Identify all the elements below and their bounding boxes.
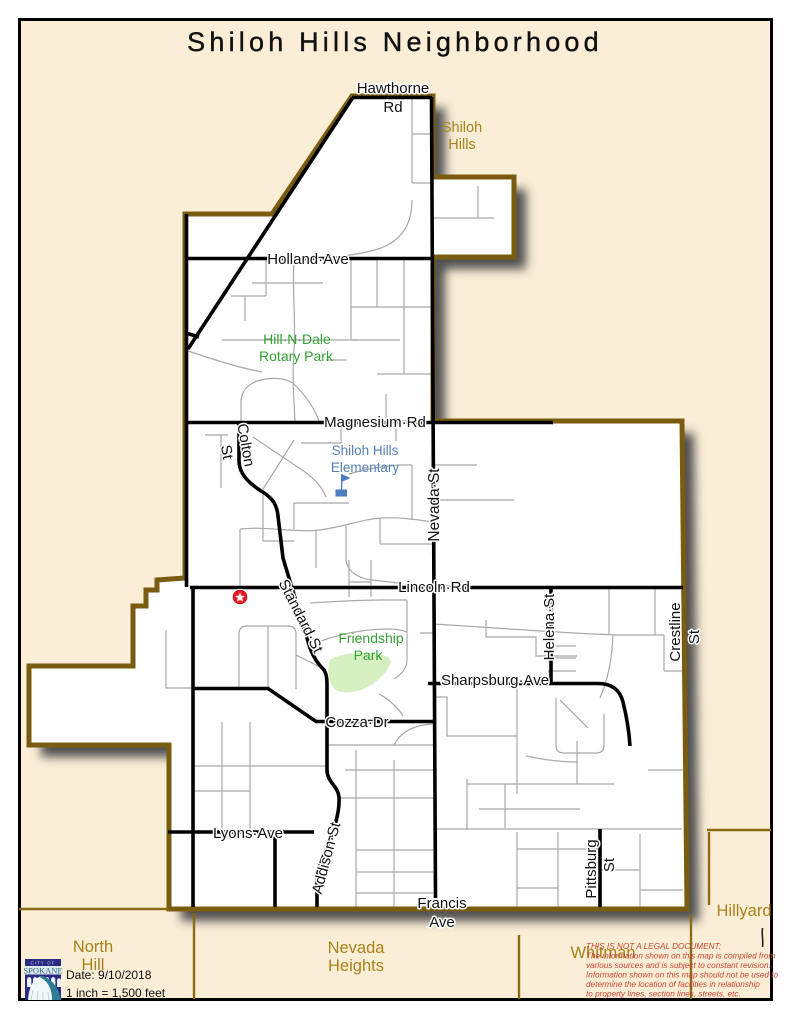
svg-text:Lyons·Ave: Lyons·Ave (213, 825, 283, 842)
svg-text:Magnesium·Rd: Magnesium·Rd (324, 414, 426, 431)
svg-text:1 inch = 1,500 feet: 1 inch = 1,500 feet (66, 986, 166, 1000)
svg-text:Sharpsburg·Ave: Sharpsburg·Ave (441, 672, 549, 689)
svg-text:Cozza·Dr: Cozza·Dr (325, 714, 388, 731)
svg-text:Shiloh Hills: Shiloh Hills (332, 443, 399, 458)
svg-text:to property lines, section lin: to property lines, section lines, street… (586, 990, 741, 999)
svg-text:Lincoln·Rd: Lincoln·Rd (398, 579, 470, 596)
svg-text:Holland·Ave: Holland·Ave (267, 251, 348, 268)
svg-text:St: St (686, 629, 703, 644)
svg-text:Heights: Heights (328, 957, 384, 975)
svg-text:Rd: Rd (383, 99, 402, 116)
svg-text:SPOKANE: SPOKANE (23, 966, 62, 976)
svg-text:Information shown on this map: Information shown on this map should not… (586, 971, 779, 980)
svg-text:Shiloh Hills Neighborhood: Shiloh Hills Neighborhood (187, 27, 603, 57)
svg-text:determine the location of faci: determine the location of facilities in … (586, 980, 760, 989)
svg-text:Shiloh: Shiloh (442, 120, 482, 136)
svg-text:St: St (601, 857, 618, 872)
svg-text:various sources and is subject: various sources and is subject to consta… (586, 961, 771, 970)
svg-text:Friendship: Friendship (338, 630, 404, 646)
svg-text:Nevada: Nevada (328, 939, 386, 957)
svg-text:Hill·N·Dale: Hill·N·Dale (263, 331, 331, 347)
svg-text:Nevada·St: Nevada·St (426, 468, 443, 542)
svg-text:THIS IS NOT A LEGAL DOCUMENT:: THIS IS NOT A LEGAL DOCUMENT: (586, 942, 721, 951)
svg-text:North: North (73, 938, 113, 956)
svg-text:Date: 9/10/2018: Date: 9/10/2018 (66, 968, 152, 982)
svg-text:Hills: Hills (448, 137, 475, 153)
svg-text:Pittsburg: Pittsburg (583, 839, 600, 898)
svg-text:Park: Park (354, 647, 384, 663)
svg-text:Hawthorne: Hawthorne (357, 80, 430, 97)
svg-text:The information shown on this: The information shown on this map is com… (586, 952, 775, 961)
svg-text:Elementary: Elementary (331, 460, 400, 475)
svg-text:Helena·St: Helena·St (541, 593, 558, 661)
svg-text:Rotary Park: Rotary Park (259, 348, 334, 364)
svg-text:Francis: Francis (417, 895, 466, 912)
svg-text:Hillyard: Hillyard (716, 902, 771, 920)
svg-text:Ave: Ave (429, 914, 455, 931)
svg-text:Crestline: Crestline (667, 602, 684, 661)
